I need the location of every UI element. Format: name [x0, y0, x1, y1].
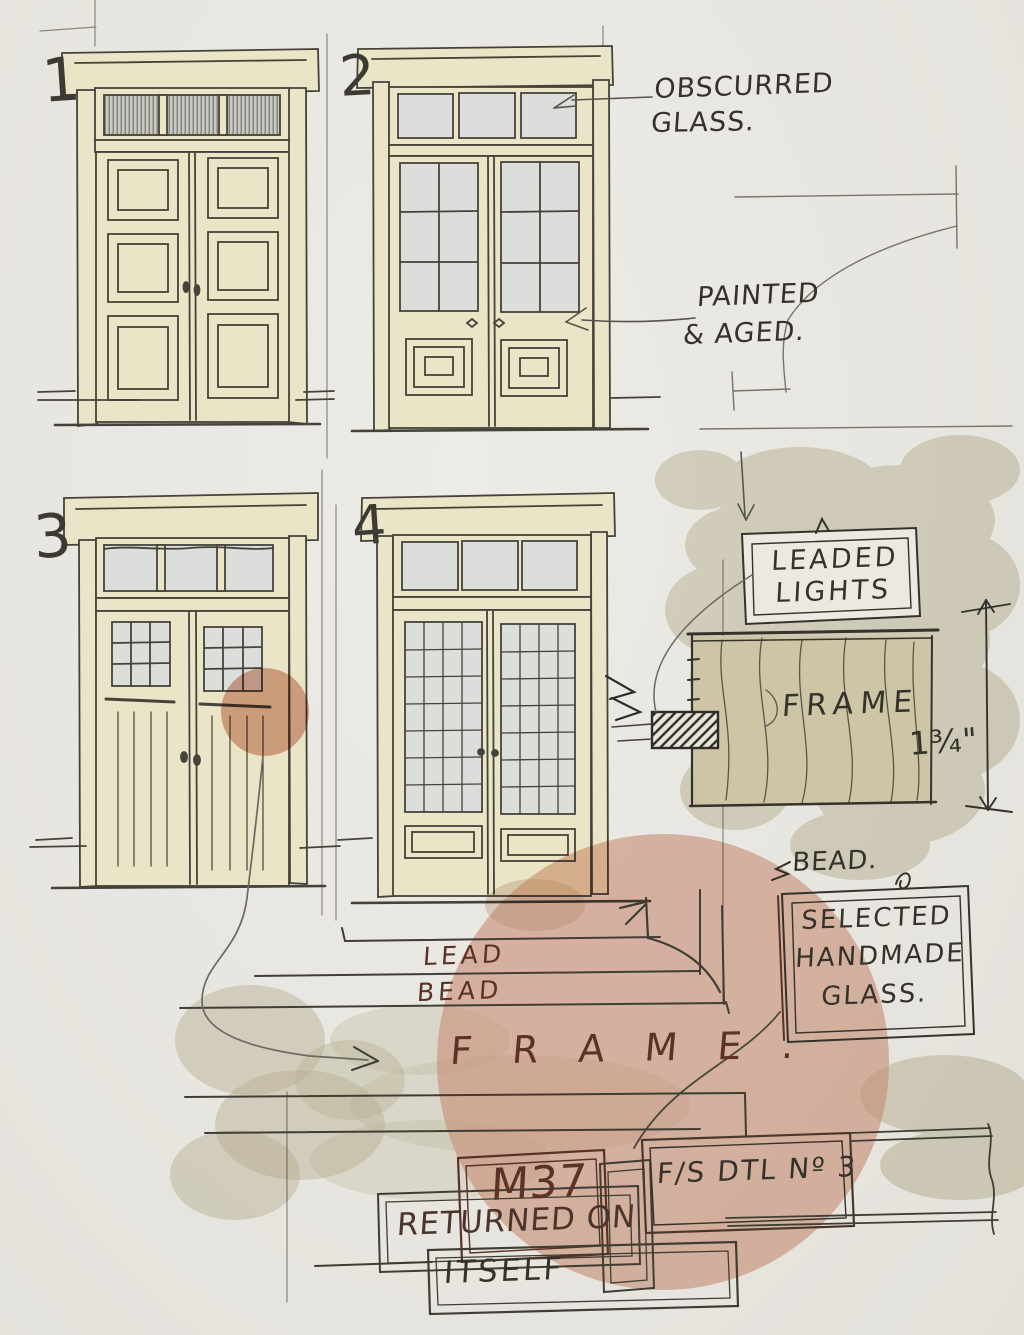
label-bead-top: BEAD.	[792, 847, 879, 876]
salmon-highlight-circle-small	[221, 668, 309, 756]
sketch-sheet: 1 2 3 4 OBSCURRED GLASS. PAINTED & AGED.…	[0, 0, 1024, 1335]
label-obscured-glass-line-2: GLASS.	[650, 108, 756, 137]
label-painted-line-1: PAINTED	[696, 280, 820, 311]
door-number-3: 3	[32, 506, 74, 568]
wash-stain	[485, 879, 585, 931]
lead-came-hatch	[652, 712, 718, 748]
label-returned-on: RETURNED ON	[396, 1202, 637, 1241]
door-2	[352, 46, 660, 431]
label-bead: BEAD	[416, 977, 503, 1005]
label-leaded-lights-line-2: LIGHTS	[775, 576, 892, 607]
label-lead: LEAD	[422, 941, 506, 969]
sketch-canvas	[0, 0, 1024, 1335]
label-frame-block: FRAME	[781, 687, 920, 722]
label-itself: ITSELF	[443, 1254, 566, 1289]
door-number-4: 4	[350, 498, 389, 554]
door-number-2: 2	[338, 48, 378, 106]
label-fs-detail: F/S DTL Nº 3	[656, 1153, 858, 1188]
label-frame-thickness: 1¾"	[908, 723, 979, 760]
label-selected-glass-line-1: SELECTED	[801, 903, 953, 934]
label-selected-glass-line-3: GLASS.	[821, 980, 929, 1010]
label-painted-line-2: & AGED.	[682, 318, 806, 349]
door-number-1: 1	[40, 49, 83, 112]
label-selected-glass-line-2: HANDMADE	[795, 940, 966, 972]
label-leaded-lights-line-1: LEADED	[771, 544, 900, 576]
label-frame-section: F R A M E .	[449, 1026, 810, 1070]
label-obscured-glass-line-1: OBSCURRED	[654, 70, 835, 103]
double-chevron-arrow	[606, 676, 640, 720]
